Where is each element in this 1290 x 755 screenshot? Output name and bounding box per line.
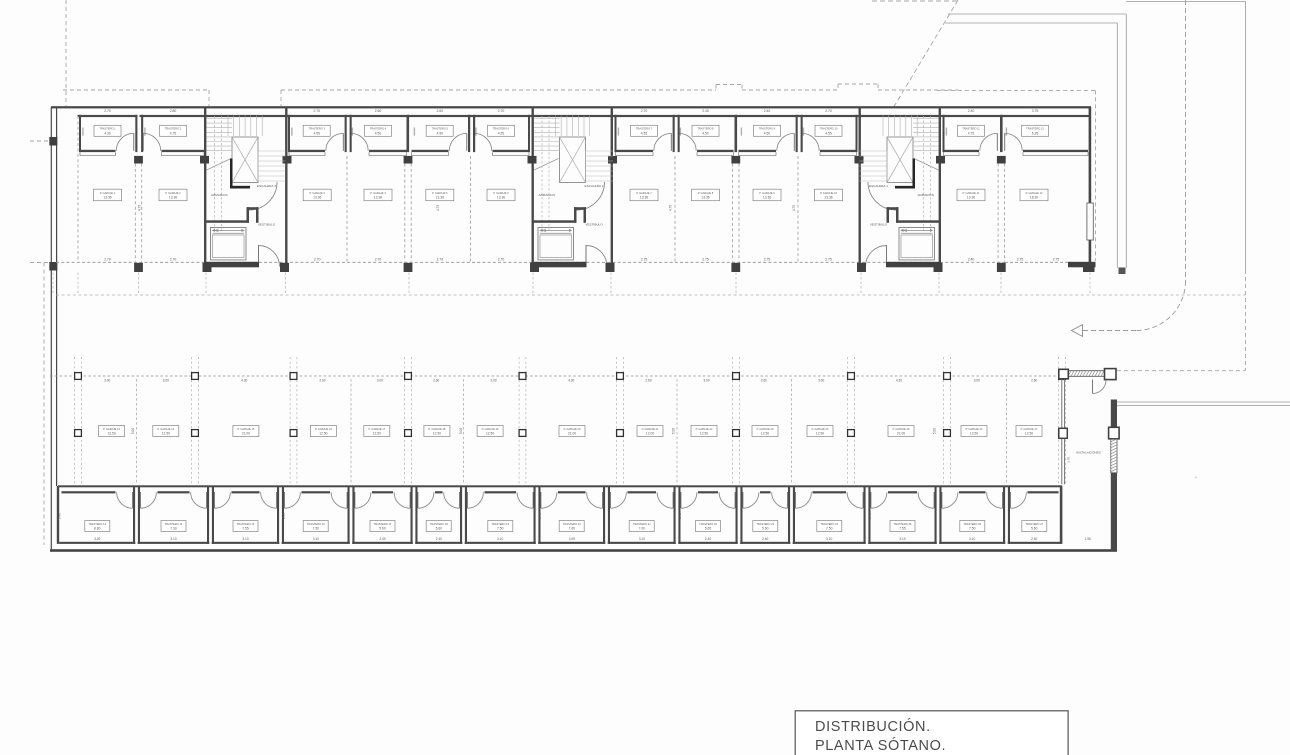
svg-text:13.36: 13.36	[436, 196, 444, 200]
svg-text:2.70: 2.70	[498, 257, 505, 261]
svg-text:P. GARAJE 10: P. GARAJE 10	[820, 191, 837, 195]
svg-text:2.70: 2.70	[436, 257, 443, 261]
svg-text:TRASTERO 27: TRASTERO 27	[1025, 522, 1043, 526]
svg-text:3.10: 3.10	[313, 537, 319, 541]
svg-text:4.75: 4.75	[436, 205, 440, 211]
svg-text:12.00: 12.00	[646, 432, 654, 436]
svg-text:4.50: 4.50	[437, 131, 444, 135]
svg-text:13.36: 13.36	[313, 196, 321, 200]
svg-text:P. GARAJE 6: P. GARAJE 6	[493, 191, 509, 195]
svg-text:TRASTERO 8: TRASTERO 8	[697, 127, 714, 131]
svg-text:2.45: 2.45	[538, 513, 542, 519]
svg-text:2.75: 2.75	[702, 257, 709, 261]
svg-text:18.30: 18.30	[1030, 196, 1038, 200]
svg-text:ESCALERA 3: ESCALERA 3	[257, 184, 276, 188]
svg-text:3.00: 3.00	[703, 379, 709, 383]
svg-text:3.70: 3.70	[1067, 457, 1071, 463]
svg-text:TRASTERO 6: TRASTERO 6	[493, 127, 510, 131]
svg-text:4.75: 4.75	[669, 205, 673, 211]
svg-text:2.75: 2.75	[764, 257, 771, 261]
svg-text:TRASTERO 22: TRASTERO 22	[699, 522, 717, 526]
svg-text:2.60: 2.60	[761, 379, 767, 383]
svg-text:13.36: 13.36	[169, 196, 177, 200]
svg-text:P. GARAJE 1: P. GARAJE 1	[100, 191, 116, 195]
svg-text:2.40: 2.40	[1031, 537, 1037, 541]
svg-text:TRASTERO 1: TRASTERO 1	[99, 127, 116, 131]
svg-text:3.10: 3.10	[497, 537, 503, 541]
svg-text:13.36: 13.36	[497, 196, 505, 200]
svg-text:2.70: 2.70	[314, 257, 321, 261]
svg-text:4.50: 4.50	[764, 131, 771, 135]
svg-text:4.75: 4.75	[968, 131, 975, 135]
svg-text:2.40: 2.40	[379, 537, 385, 541]
svg-text:TRASTERO 16: TRASTERO 16	[307, 522, 325, 526]
svg-text:2.80: 2.80	[170, 109, 177, 113]
svg-text:12.50: 12.50	[433, 432, 441, 436]
svg-text:4.75: 4.75	[138, 205, 142, 211]
svg-text:3.00: 3.00	[818, 379, 824, 383]
svg-text:P. GARAJE 20: P. GARAJE 20	[564, 427, 581, 431]
svg-text:P. GARAJE 5: P. GARAJE 5	[432, 191, 448, 195]
svg-text:2.75: 2.75	[825, 257, 832, 261]
svg-text:2.70: 2.70	[825, 109, 832, 113]
svg-text:VESTIBULO: VESTIBULO	[258, 223, 276, 227]
svg-text:4.75: 4.75	[170, 131, 177, 135]
svg-text:2.70: 2.70	[375, 257, 382, 261]
svg-text:13.36: 13.36	[103, 196, 111, 200]
svg-text:TRASTERO 9: TRASTERO 9	[759, 127, 776, 131]
svg-text:4.75: 4.75	[792, 205, 796, 211]
svg-text:P. GARAJE 16: P. GARAJE 16	[315, 427, 332, 431]
svg-text:ESCALERA 1: ESCALERA 1	[869, 184, 888, 188]
svg-text:PLANTA SÓTANO.: PLANTA SÓTANO.	[815, 737, 946, 754]
svg-text:TRASTERO 23: TRASTERO 23	[756, 522, 774, 526]
svg-text:2.40: 2.40	[968, 109, 975, 113]
svg-text:2.70: 2.70	[498, 109, 505, 113]
svg-text:4.50: 4.50	[375, 131, 382, 135]
svg-text:5.60: 5.60	[379, 527, 386, 531]
svg-text:2.40: 2.40	[705, 537, 711, 541]
svg-text:5.60: 5.60	[1031, 527, 1038, 531]
svg-text:2.70: 2.70	[104, 109, 111, 113]
svg-text:3.10: 3.10	[242, 537, 248, 541]
svg-text:2.45: 2.45	[415, 513, 419, 519]
svg-text:P. GARAJE 22: P. GARAJE 22	[696, 427, 713, 431]
svg-text:6.35: 6.35	[1032, 131, 1039, 135]
svg-text:7.00: 7.00	[639, 527, 646, 531]
svg-text:5.60: 5.60	[436, 527, 443, 531]
svg-text:12.50: 12.50	[970, 432, 978, 436]
svg-text:P. GARAJE 19: P. GARAJE 19	[482, 427, 499, 431]
svg-text:12.50: 12.50	[700, 432, 708, 436]
svg-text:P. GARAJE 14: P. GARAJE 14	[157, 427, 174, 431]
svg-text:21.00: 21.00	[242, 432, 250, 436]
svg-text:INSTALACIONES: INSTALACIONES	[1076, 451, 1101, 455]
svg-text:P. GARAJE 21: P. GARAJE 21	[642, 427, 659, 431]
svg-text:2.70: 2.70	[104, 257, 111, 261]
svg-text:7.50: 7.50	[497, 527, 504, 531]
svg-text:4.55: 4.55	[498, 131, 505, 135]
svg-text:2.40: 2.40	[968, 257, 975, 261]
svg-text:7.60: 7.60	[569, 527, 576, 531]
svg-text:TRASTERO 14: TRASTERO 14	[165, 522, 183, 526]
svg-text:4.55: 4.55	[641, 131, 648, 135]
svg-text:VESTIBULO: VESTIBULO	[870, 223, 888, 227]
svg-text:2.60: 2.60	[645, 379, 651, 383]
svg-text:7.50: 7.50	[969, 527, 976, 531]
svg-text:13.36: 13.36	[374, 196, 382, 200]
svg-text:5.65: 5.65	[705, 527, 712, 531]
svg-text:ARMARIOS: ARMARIOS	[917, 193, 934, 197]
svg-text:7.50: 7.50	[826, 527, 833, 531]
svg-text:12.50: 12.50	[486, 432, 494, 436]
svg-text:TRASTERO 3: TRASTERO 3	[309, 127, 326, 131]
svg-text:TRASTERO 2: TRASTERO 2	[165, 127, 182, 131]
svg-text:7.30: 7.30	[170, 527, 177, 531]
svg-text:2.60: 2.60	[319, 379, 325, 383]
svg-text:3.00: 3.00	[104, 379, 110, 383]
svg-text:4.30: 4.30	[896, 379, 902, 383]
svg-text:12.50: 12.50	[1025, 432, 1033, 436]
svg-text:7.55: 7.55	[242, 527, 249, 531]
svg-text:P. GARAJE 27: P. GARAJE 27	[1021, 427, 1038, 431]
svg-text:4.30: 4.30	[241, 379, 247, 383]
svg-text:4.55: 4.55	[825, 131, 832, 135]
svg-text:1.95: 1.95	[1085, 537, 1091, 541]
svg-text:13.36: 13.36	[640, 196, 648, 200]
svg-text:TRASTERO 15: TRASTERO 15	[237, 522, 255, 526]
svg-text:5.00: 5.00	[933, 428, 937, 434]
svg-text:TRASTERO 13: TRASTERO 13	[88, 522, 106, 526]
svg-text:12.50: 12.50	[816, 432, 824, 436]
svg-text:3.10: 3.10	[639, 537, 645, 541]
svg-text:2.40: 2.40	[764, 109, 771, 113]
svg-text:TRASTERO 4: TRASTERO 4	[370, 127, 387, 131]
svg-text:P. GARAJE 24: P. GARAJE 24	[812, 427, 829, 431]
svg-text:21.00: 21.00	[897, 432, 905, 436]
svg-text:13.36: 13.36	[967, 196, 975, 200]
svg-text:ARMARIOS: ARMARIOS	[539, 193, 556, 197]
svg-text:12.50: 12.50	[107, 432, 115, 436]
svg-text:4.30: 4.30	[104, 131, 111, 135]
svg-text:TRASTERO 10: TRASTERO 10	[820, 127, 838, 131]
svg-text:3.00: 3.00	[490, 379, 496, 383]
svg-text:P. GARAJE 7: P. GARAJE 7	[636, 191, 652, 195]
svg-text:3.10: 3.10	[899, 537, 905, 541]
svg-text:TRASTERO 11: TRASTERO 11	[962, 127, 980, 131]
svg-text:13.36: 13.36	[763, 196, 771, 200]
svg-text:2.60: 2.60	[375, 109, 382, 113]
svg-text:13.36: 13.36	[824, 196, 832, 200]
svg-text:3.00: 3.00	[377, 379, 383, 383]
svg-text:4.55: 4.55	[314, 131, 321, 135]
svg-text:3.40: 3.40	[94, 537, 100, 541]
svg-text:3.10: 3.10	[826, 537, 832, 541]
svg-text:5.00: 5.00	[459, 428, 463, 434]
svg-text:ESCALERA 2: ESCALERA 2	[585, 184, 604, 188]
svg-text:3.00: 3.00	[163, 379, 169, 383]
svg-text:2.70: 2.70	[170, 257, 177, 261]
svg-text:2.60: 2.60	[1031, 379, 1037, 383]
svg-text:TRASTERO 20: TRASTERO 20	[563, 522, 581, 526]
svg-text:P. GARAJE 2: P. GARAJE 2	[165, 191, 181, 195]
svg-text:3.00: 3.00	[974, 379, 980, 383]
svg-text:7.50: 7.50	[313, 527, 320, 531]
svg-text:P. GARAJE 11: P. GARAJE 11	[963, 191, 980, 195]
svg-text:+: +	[1195, 475, 1198, 480]
svg-text:2.40: 2.40	[702, 109, 709, 113]
svg-text:21.00: 21.00	[568, 432, 576, 436]
svg-text:P. GARAJE 8: P. GARAJE 8	[698, 191, 714, 195]
svg-text:2.45: 2.45	[678, 513, 682, 519]
svg-text:TRASTERO 21: TRASTERO 21	[633, 522, 651, 526]
svg-text:2.75: 2.75	[641, 257, 648, 261]
svg-text:P. GARAJE 15: P. GARAJE 15	[237, 427, 254, 431]
svg-text:2.40: 2.40	[436, 537, 442, 541]
svg-text:VESTIBULO: VESTIBULO	[585, 223, 603, 227]
svg-text:2.70: 2.70	[313, 109, 320, 113]
svg-text:12.50: 12.50	[373, 432, 381, 436]
svg-text:3.10: 3.10	[170, 537, 176, 541]
svg-text:TRASTERO 24: TRASTERO 24	[820, 522, 838, 526]
svg-text:ARMARIOS: ARMARIOS	[211, 193, 228, 197]
svg-text:P. GARAJE 26: P. GARAJE 26	[966, 427, 983, 431]
svg-text:2.60: 2.60	[433, 379, 439, 383]
svg-text:P. GARAJE 9: P. GARAJE 9	[759, 191, 775, 195]
svg-text:4.50: 4.50	[702, 131, 709, 135]
svg-text:TRASTERO 12: TRASTERO 12	[1026, 127, 1044, 131]
svg-text:8.80: 8.80	[94, 527, 101, 531]
svg-text:TRASTERO 7: TRASTERO 7	[636, 127, 653, 131]
svg-text:2.75: 2.75	[1017, 257, 1024, 261]
svg-text:2.45: 2.45	[282, 513, 286, 519]
svg-text:2.75: 2.75	[1053, 257, 1060, 261]
svg-text:TRASTERO 17: TRASTERO 17	[374, 522, 392, 526]
svg-text:P. GARAJE 23: P. GARAJE 23	[757, 427, 774, 431]
svg-text:3.75: 3.75	[1032, 109, 1039, 113]
svg-text:12.50: 12.50	[761, 432, 769, 436]
svg-text:3.05: 3.05	[569, 537, 575, 541]
svg-text:TRASTERO 5: TRASTERO 5	[432, 127, 449, 131]
svg-text:DISTRIBUCIÓN.: DISTRIBUCIÓN.	[815, 718, 931, 735]
svg-text:P. GARAJE 18: P. GARAJE 18	[428, 427, 445, 431]
svg-text:5.00: 5.00	[131, 428, 135, 434]
svg-text:TRASTERO 19: TRASTERO 19	[491, 522, 509, 526]
svg-text:13.36: 13.36	[701, 196, 709, 200]
svg-text:TRASTERO 18: TRASTERO 18	[430, 522, 448, 526]
svg-text:2.45: 2.45	[868, 513, 872, 519]
svg-text:TRASTERO 26: TRASTERO 26	[963, 522, 981, 526]
svg-text:2.40: 2.40	[762, 537, 768, 541]
svg-text:P. GARAJE 13: P. GARAJE 13	[103, 427, 120, 431]
svg-text:P. GARAJE 4: P. GARAJE 4	[370, 191, 386, 195]
svg-text:12.50: 12.50	[319, 432, 327, 436]
svg-text:2.70: 2.70	[641, 109, 648, 113]
svg-text:5.00: 5.00	[672, 428, 676, 434]
svg-text:P. GARAJE 25: P. GARAJE 25	[893, 427, 910, 431]
svg-text:4.30: 4.30	[568, 379, 574, 383]
svg-text:7.55: 7.55	[899, 527, 906, 531]
svg-text:5.60: 5.60	[762, 527, 769, 531]
svg-text:3.10: 3.10	[969, 537, 975, 541]
svg-text:P. GARAJE 17: P. GARAJE 17	[368, 427, 385, 431]
svg-text:2.45: 2.45	[58, 513, 62, 519]
svg-text:P. GARAJE 3: P. GARAJE 3	[310, 191, 326, 195]
svg-text:P. GARAJE 12: P. GARAJE 12	[1026, 191, 1043, 195]
svg-text:TRASTERO 25: TRASTERO 25	[894, 522, 912, 526]
svg-text:12.50: 12.50	[162, 432, 170, 436]
svg-text:2.60: 2.60	[436, 109, 443, 113]
